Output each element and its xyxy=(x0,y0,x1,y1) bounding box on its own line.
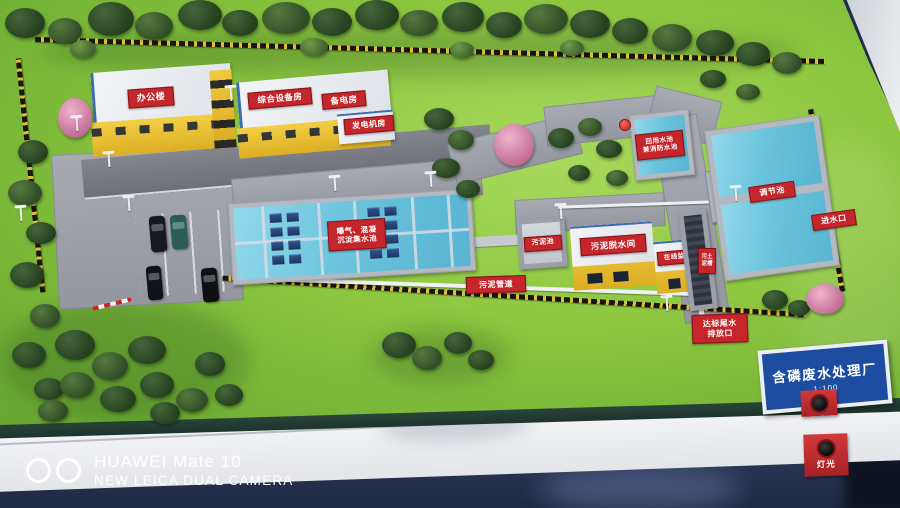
floor-reflection xyxy=(540,466,740,508)
button-knob xyxy=(818,440,834,456)
reuse-fire-pool: 回用水池 兼消防水池 xyxy=(629,109,696,181)
aerator-unit xyxy=(269,213,282,223)
tree xyxy=(652,24,692,52)
tree xyxy=(524,4,568,34)
tree xyxy=(560,40,584,56)
reuse-pool-label: 回用水池 兼消防水池 xyxy=(635,130,685,161)
aerator-unit xyxy=(287,226,300,236)
tree xyxy=(596,140,622,158)
tree xyxy=(448,130,474,150)
dual-camera-icon xyxy=(26,458,81,483)
aerator-unit xyxy=(272,255,285,265)
tree xyxy=(5,8,45,38)
sludge-pool-label-text: 污泥池 xyxy=(532,238,555,248)
tree xyxy=(696,30,734,56)
tree xyxy=(772,52,802,74)
tree xyxy=(612,18,648,44)
model-car xyxy=(201,267,220,302)
aerator-unit xyxy=(384,206,397,216)
tree xyxy=(570,10,610,38)
channel-label: 污土 泥槽 xyxy=(698,248,716,274)
aeration-pool-label: 曝气、混凝 沉淀集水池 xyxy=(327,218,387,251)
channel-label-line1: 污土 xyxy=(701,254,712,261)
tree xyxy=(128,336,166,364)
watermark-camera: NEW LEICA DUAL CAMERA xyxy=(94,473,294,488)
equipment-room-label-text: 综合设备房 xyxy=(257,91,303,106)
photo-scale-model-wastewater-plant: 办公楼 综合设备房 备电房 发电机房 曝气、混凝 沉淀集水池 污泥池 xyxy=(0,0,900,508)
backup-power-label-text: 备电房 xyxy=(330,94,358,107)
tree xyxy=(195,352,225,376)
tree xyxy=(736,84,760,100)
tree xyxy=(70,40,96,58)
tree xyxy=(176,388,208,412)
aerator-unit xyxy=(286,212,299,222)
tree xyxy=(92,352,128,380)
regulating-pool-label-text: 调节池 xyxy=(759,185,786,198)
tree xyxy=(736,42,770,66)
light-button-label: 灯光 xyxy=(817,457,836,470)
indicator-light xyxy=(620,120,630,130)
sludge-pipeline-label: 污泥管道 xyxy=(466,275,527,294)
floor-shadow xyxy=(845,455,900,508)
tree xyxy=(450,42,474,58)
tree xyxy=(60,372,94,398)
tree xyxy=(100,386,136,412)
aerator-unit xyxy=(289,254,302,264)
tree xyxy=(700,70,726,88)
aerator-unit xyxy=(271,241,284,251)
model-car xyxy=(148,215,167,252)
aeration-pool: 曝气、混凝 沉淀集水池 xyxy=(228,189,477,286)
aerator-unit xyxy=(370,249,383,259)
aerator-unit xyxy=(367,207,380,217)
camera-watermark: HUAWEI Mate 10 NEW LEICA DUAL CAMERA xyxy=(26,452,294,488)
tree xyxy=(300,38,328,56)
office-roof-label: 办公楼 xyxy=(127,86,174,108)
tree xyxy=(222,10,258,36)
tree xyxy=(606,170,628,186)
tree xyxy=(38,400,68,422)
model-car xyxy=(146,265,164,300)
light-button: 灯光 xyxy=(803,433,848,477)
tree xyxy=(135,12,173,40)
tree xyxy=(12,342,46,368)
dewatering-building: 污泥脱水间 xyxy=(570,221,656,291)
channel-label-line2: 泥槽 xyxy=(701,261,712,268)
tree xyxy=(140,372,174,398)
tree xyxy=(150,402,180,424)
regulating-pool: 调节池 xyxy=(704,115,840,282)
tree xyxy=(262,2,310,34)
watermark-device: HUAWEI Mate 10 xyxy=(94,452,294,472)
tree xyxy=(486,12,522,38)
dewatering-label-text: 污泥脱水间 xyxy=(590,238,636,252)
sludge-pool-label: 污泥池 xyxy=(524,235,563,253)
sludge-pipeline-label-text: 污泥管道 xyxy=(479,279,513,290)
button-knob xyxy=(811,395,827,411)
aerator-unit xyxy=(288,240,301,250)
tree xyxy=(548,128,574,148)
tree xyxy=(178,0,222,30)
tree xyxy=(355,0,399,30)
sludge-pool: 污泥池 xyxy=(516,216,567,269)
tree xyxy=(456,180,480,198)
tree xyxy=(30,304,60,328)
tree xyxy=(215,384,243,406)
plant-name-text: 含磷废水处理厂 xyxy=(771,357,877,386)
tree xyxy=(468,350,494,370)
aerator-unit xyxy=(270,227,283,237)
tree xyxy=(444,332,472,354)
tree xyxy=(578,118,602,136)
tree xyxy=(10,262,44,288)
tree xyxy=(55,330,95,360)
flower-tree xyxy=(494,124,534,166)
flower-tree xyxy=(806,284,844,314)
aerator-unit xyxy=(386,234,399,244)
tree xyxy=(568,165,590,181)
tree xyxy=(424,108,454,130)
tree xyxy=(412,346,442,370)
tree xyxy=(26,222,56,244)
water-inlet-label-text: 进水口 xyxy=(821,213,848,226)
tree xyxy=(312,8,352,36)
tree xyxy=(8,180,42,206)
tree xyxy=(382,332,416,358)
aerator-unit xyxy=(385,220,398,230)
aerator-unit xyxy=(387,248,400,258)
outfall-label: 达标尾水 排放口 xyxy=(692,313,749,344)
tree xyxy=(442,2,484,32)
outfall-label-line2: 排放口 xyxy=(707,328,733,339)
generator-room-label-text: 发电机房 xyxy=(352,119,387,132)
model-car xyxy=(170,214,189,249)
tree xyxy=(400,10,438,36)
aeration-label-line2: 沉淀集水池 xyxy=(337,233,377,245)
light-button-upper xyxy=(800,389,837,417)
tree xyxy=(762,290,788,310)
office-label-text: 办公楼 xyxy=(136,91,165,104)
tree xyxy=(88,2,134,36)
tree xyxy=(18,140,48,164)
tree xyxy=(432,158,460,178)
